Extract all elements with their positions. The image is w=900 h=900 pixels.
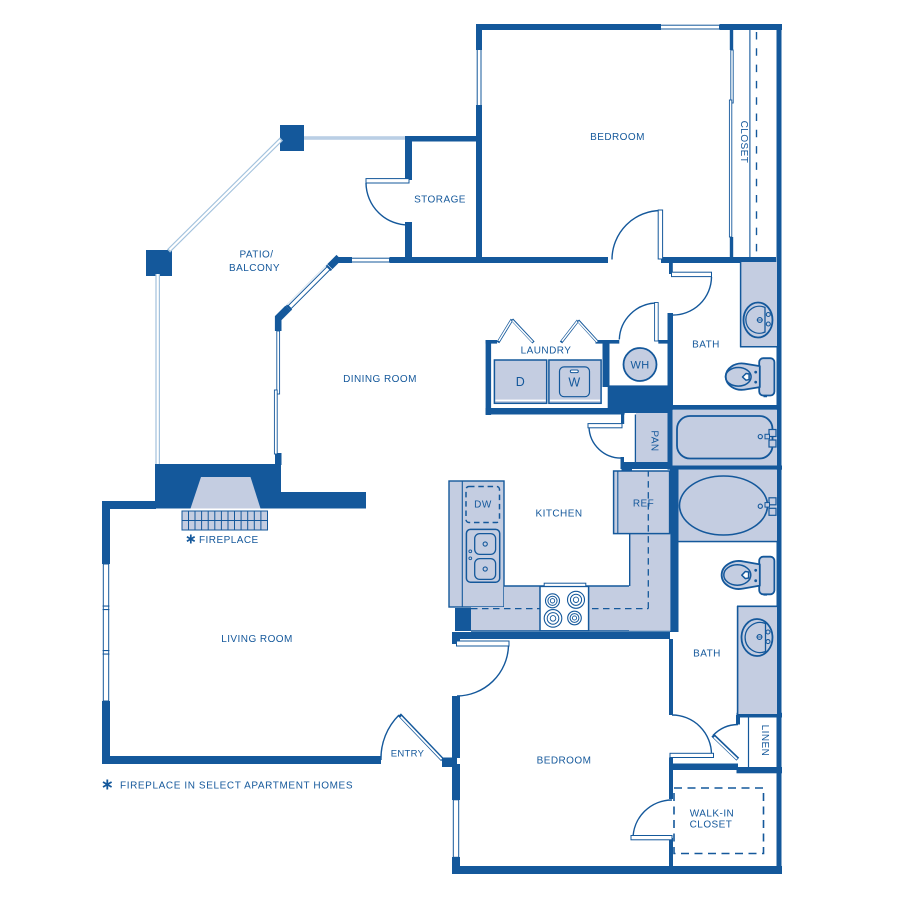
svg-text:BEDROOM: BEDROOM — [590, 132, 645, 143]
svg-text:CLOSET: CLOSET — [690, 820, 733, 831]
svg-text:BEDROOM: BEDROOM — [537, 756, 592, 767]
svg-text:W: W — [568, 375, 580, 389]
svg-text:FIREPLACE IN SELECT APARTMENT: FIREPLACE IN SELECT APARTMENT HOMES — [120, 781, 353, 792]
svg-text:CLOSET: CLOSET — [738, 121, 749, 164]
svg-text:LIVING ROOM: LIVING ROOM — [221, 634, 293, 645]
svg-text:WALK-IN: WALK-IN — [690, 809, 734, 820]
svg-text:ENTRY: ENTRY — [391, 749, 425, 760]
svg-text:FIREPLACE: FIREPLACE — [199, 535, 259, 546]
svg-text:D: D — [516, 375, 526, 389]
svg-text:REF: REF — [633, 499, 654, 510]
svg-text:DINING ROOM: DINING ROOM — [343, 374, 417, 385]
svg-text:WH: WH — [631, 360, 650, 372]
svg-text:DW: DW — [474, 500, 492, 511]
svg-text:PAN: PAN — [649, 430, 660, 451]
svg-text:LAUNDRY: LAUNDRY — [521, 346, 572, 357]
svg-text:PATIO/: PATIO/ — [240, 250, 274, 261]
svg-text:BATH: BATH — [693, 649, 721, 660]
svg-text:BALCONY: BALCONY — [229, 263, 280, 274]
svg-text:BATH: BATH — [692, 340, 720, 351]
svg-text:STORAGE: STORAGE — [414, 195, 466, 206]
svg-text:KITCHEN: KITCHEN — [535, 509, 582, 520]
svg-text:LINEN: LINEN — [759, 725, 770, 757]
